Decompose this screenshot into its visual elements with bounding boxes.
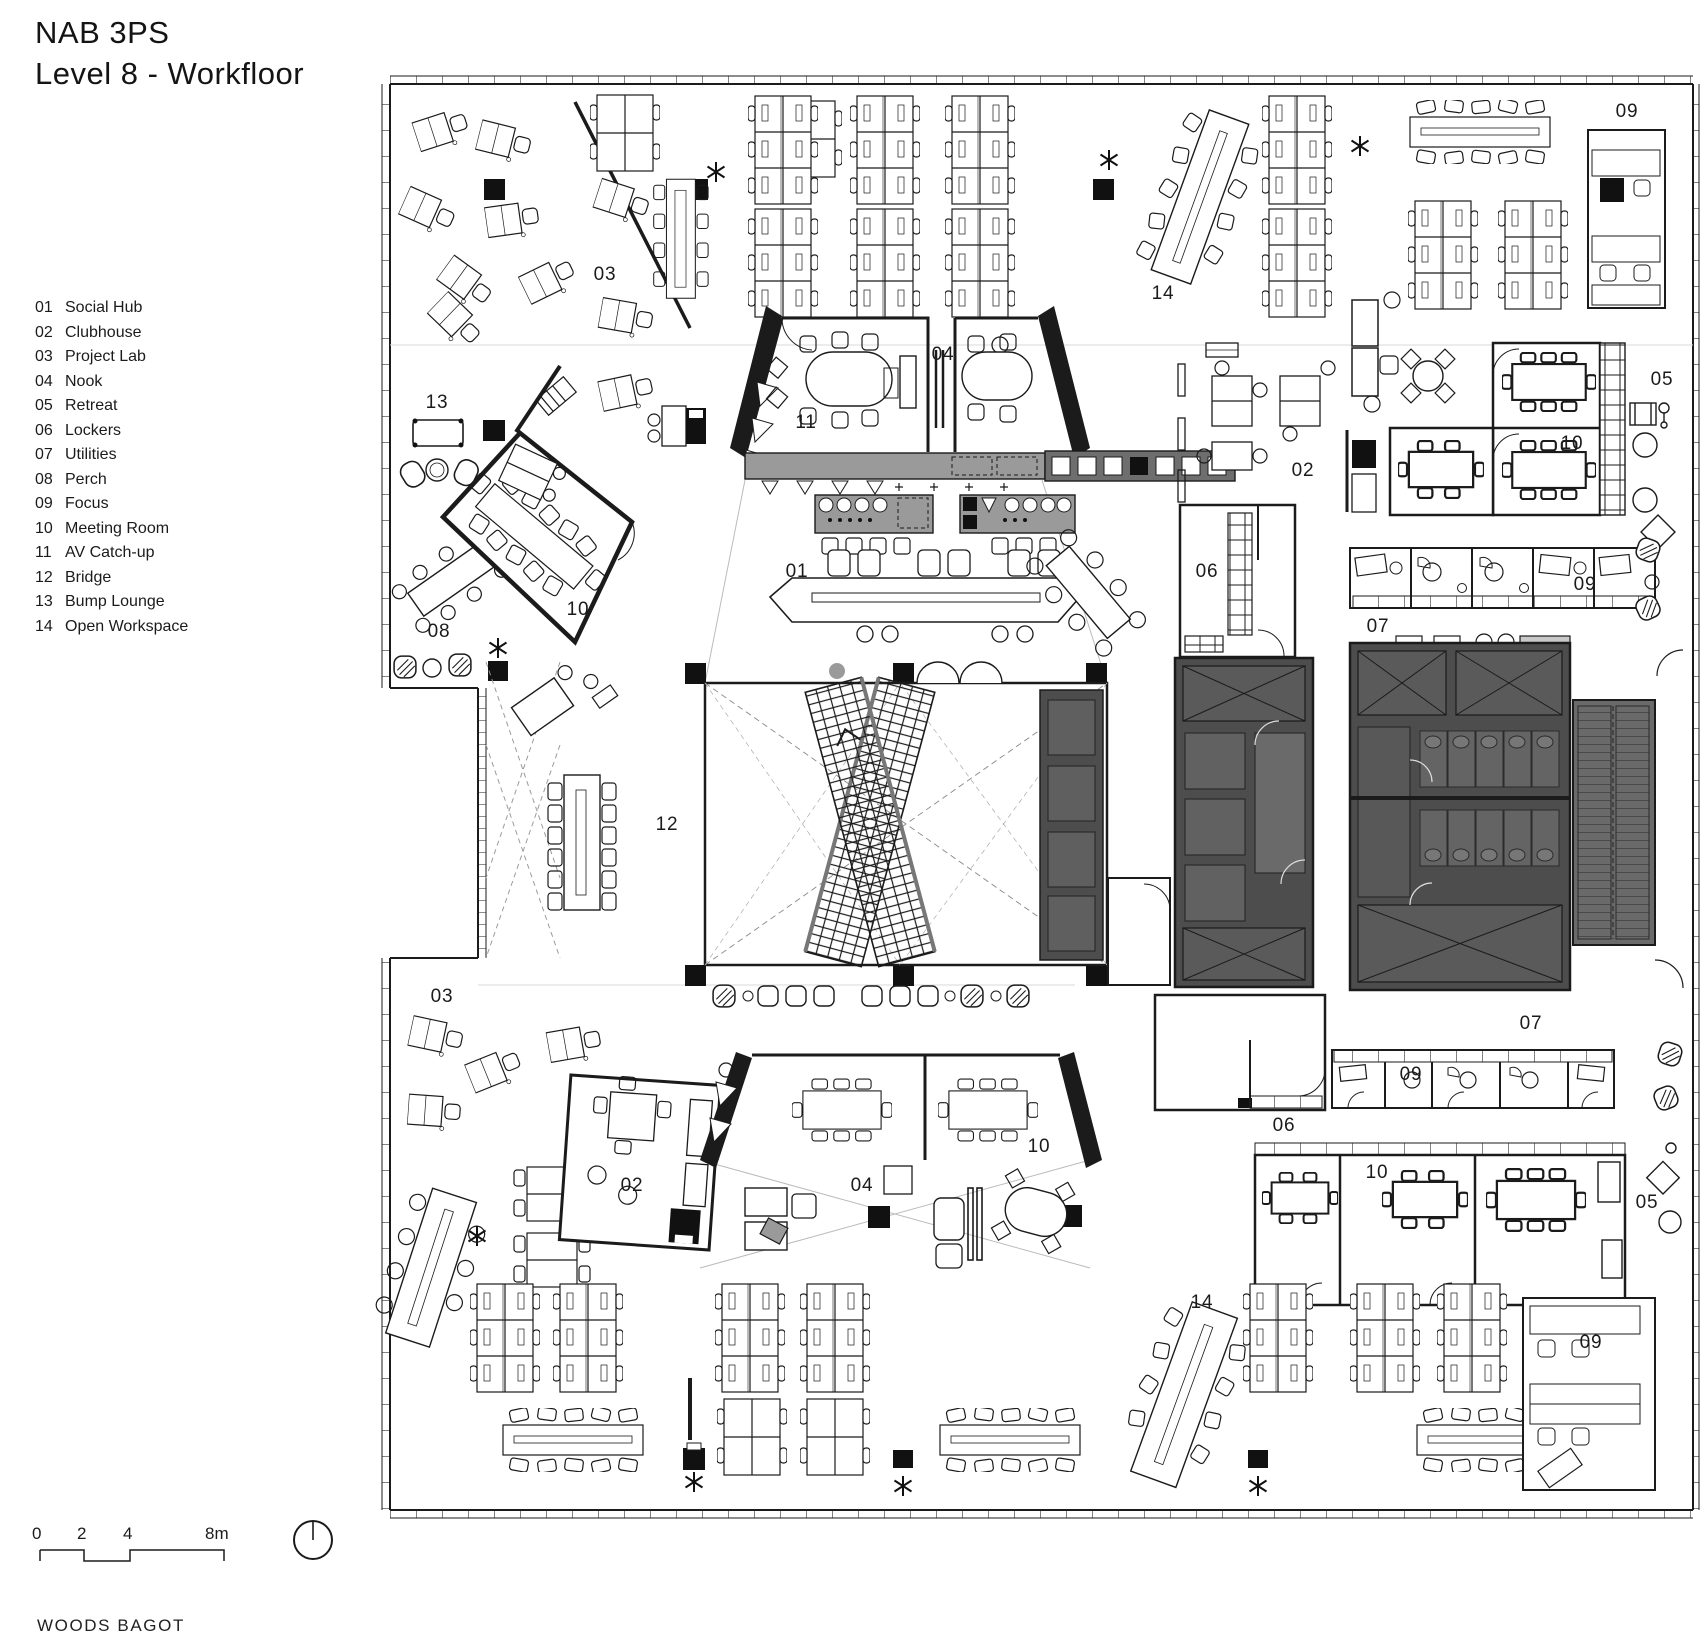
- legend-label: Meeting Room: [65, 520, 169, 537]
- room-label-01: 01: [786, 561, 809, 583]
- scale-tick-4: 4: [123, 1524, 132, 1544]
- legend-label: Perch: [65, 471, 107, 488]
- scale-tick-2: 2: [77, 1524, 86, 1544]
- legend-label: AV Catch-up: [65, 544, 155, 561]
- legend-item: 09Focus: [35, 492, 188, 517]
- legend-item: 10Meeting Room: [35, 517, 188, 542]
- legend-item: 01Social Hub: [35, 296, 188, 321]
- zone-retreat-top-right: [1630, 403, 1675, 549]
- legend-num: 07: [35, 443, 65, 468]
- legend-label: Clubhouse: [65, 324, 142, 341]
- project-name: NAB 3PS: [35, 12, 304, 53]
- legend-item: 13Bump Lounge: [35, 590, 188, 615]
- angled-bench-14: [1132, 103, 1268, 291]
- room-label-09: 09: [1574, 574, 1597, 596]
- room-label-11: 11: [795, 412, 816, 434]
- legend-num: 03: [35, 345, 65, 370]
- room-label-02: 02: [1292, 460, 1315, 482]
- legend-label: Utilities: [65, 446, 117, 463]
- legend-num: 14: [35, 615, 65, 640]
- zone-meeting-bottom-center: [700, 1052, 1102, 1268]
- legend-num: 05: [35, 394, 65, 419]
- focus-room-bottom-right: [1523, 1298, 1655, 1490]
- legend-item: 12Bridge: [35, 566, 188, 591]
- room-label-05: 05: [1651, 369, 1674, 391]
- legend-item: 02Clubhouse: [35, 321, 188, 346]
- firm-logo-text: WOODS BAGOT: [37, 1616, 185, 1636]
- legend-num: 06: [35, 419, 65, 444]
- legend-label: Nook: [65, 373, 102, 390]
- legend-label: Bump Lounge: [65, 593, 165, 610]
- angled-bench-14-bottom: [1110, 1294, 1257, 1494]
- legend-num: 01: [35, 296, 65, 321]
- room-label-10: 10: [1561, 433, 1584, 455]
- room-label-06: 06: [1196, 561, 1219, 583]
- room-label-03: 03: [431, 986, 454, 1008]
- core-west: [1175, 658, 1313, 987]
- legend-label: Social Hub: [65, 299, 142, 316]
- room-label-14: 14: [1152, 283, 1175, 305]
- room-label-13: 13: [426, 392, 449, 414]
- zone-meeting-rooms-bottom-right: [1255, 1143, 1625, 1305]
- room-label-08: 08: [428, 621, 451, 643]
- plan-drawing: [0, 0, 1700, 1644]
- room-label-07: 07: [1367, 616, 1390, 638]
- legend-item: 06Lockers: [35, 419, 188, 444]
- legend-item: 08Perch: [35, 468, 188, 493]
- zone-focus-row-bottom: [1332, 1050, 1614, 1108]
- focus-room-top-right: [1588, 130, 1665, 308]
- legend-label: Open Workspace: [65, 618, 188, 635]
- scale-tick-0: 0: [32, 1524, 41, 1544]
- legend-num: 09: [35, 492, 65, 517]
- legend-label: Bridge: [65, 569, 111, 586]
- legend-num: 08: [35, 468, 65, 493]
- room-label-10: 10: [1366, 1162, 1389, 1184]
- room-label-10: 10: [567, 599, 590, 621]
- room-label-14: 14: [1191, 1292, 1214, 1314]
- zone-lockers-bottom: [1155, 995, 1325, 1110]
- zone-focus-row-mid: [1350, 536, 1662, 658]
- level-name: Level 8 - Workfloor: [35, 53, 304, 94]
- clubhouse-room-bottom: [559, 1073, 720, 1250]
- room-label-04: 04: [932, 344, 955, 366]
- room-label-02: 02: [621, 1175, 644, 1197]
- legend-num: 02: [35, 321, 65, 346]
- legend-item: 04Nook: [35, 370, 188, 395]
- corridor-room: [1108, 878, 1170, 985]
- room-legend: 01Social Hub 02Clubhouse 03Project Lab 0…: [35, 296, 188, 639]
- core-east: [1350, 643, 1570, 990]
- legend-num: 12: [35, 566, 65, 591]
- legend-item: 11AV Catch-up: [35, 541, 188, 566]
- legend-item: 14Open Workspace: [35, 615, 188, 640]
- room-label-04: 04: [851, 1175, 874, 1197]
- zone-av-catchup: [648, 306, 1235, 494]
- legend-num: 10: [35, 517, 65, 542]
- room-label-12: 12: [656, 814, 679, 836]
- room-label-10: 10: [1028, 1136, 1051, 1158]
- room-label-09: 09: [1616, 101, 1639, 123]
- zone-bridge: [486, 650, 618, 958]
- legend-item: 03Project Lab: [35, 345, 188, 370]
- zone-social-hub: [770, 495, 1153, 662]
- room-label-09: 09: [1400, 1064, 1423, 1086]
- zone-meeting-rooms-top-right: [1390, 343, 1625, 515]
- room-label-05: 05: [1636, 1192, 1659, 1214]
- zone-atrium: [705, 662, 1107, 1007]
- room-label-09: 09: [1580, 1332, 1603, 1354]
- legend-item: 05Retreat: [35, 394, 188, 419]
- room-label-06: 06: [1273, 1115, 1296, 1137]
- room-label-03: 03: [594, 264, 617, 286]
- legend-label: Lockers: [65, 422, 121, 439]
- scale-tick-8m: 8m: [205, 1524, 229, 1544]
- fire-stair-east: [1573, 650, 1683, 988]
- legend-num: 13: [35, 590, 65, 615]
- legend-num: 04: [35, 370, 65, 395]
- drawing-title: NAB 3PS Level 8 - Workfloor: [35, 12, 304, 94]
- legend-num: 11: [35, 541, 65, 566]
- legend-label: Focus: [65, 495, 109, 512]
- legend-label: Project Lab: [65, 348, 146, 365]
- legend-label: Retreat: [65, 397, 117, 414]
- legend-item: 07Utilities: [35, 443, 188, 468]
- floor-plan-sheet: NAB 3PS Level 8 - Workfloor 01Social Hub…: [0, 0, 1700, 1644]
- room-label-07: 07: [1520, 1013, 1543, 1035]
